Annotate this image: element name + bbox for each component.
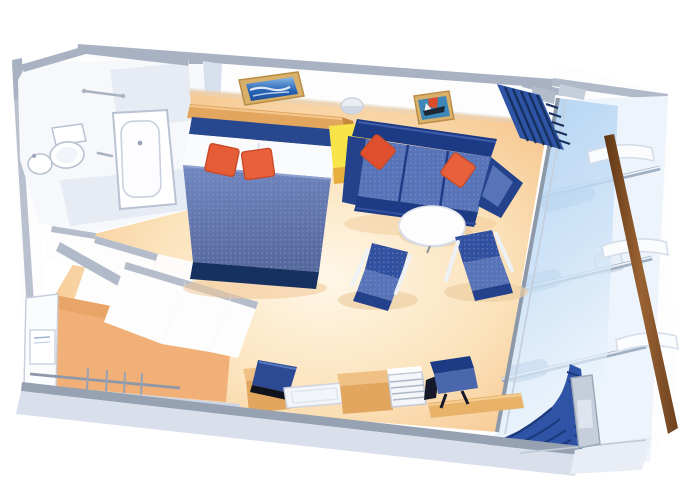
minibar [387,366,426,407]
sink [28,154,52,174]
floorplan-canvas [0,0,680,486]
stateroom-floorplan [0,0,680,486]
glass-tray [284,383,345,408]
artwork-above-sofa [414,91,454,124]
desk-cabinet [337,370,393,414]
bathtub [113,110,176,209]
wall-light [341,98,363,114]
toilet [49,124,86,170]
